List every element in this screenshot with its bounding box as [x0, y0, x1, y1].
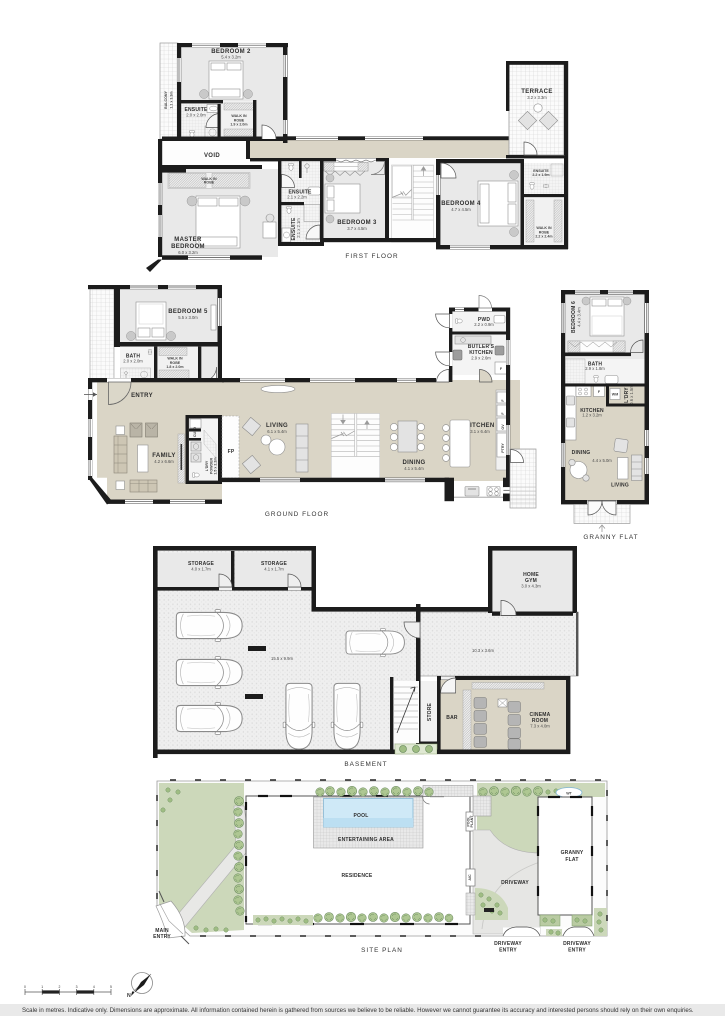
svg-text:1.5 x 2.2m: 1.5 x 2.2m — [214, 457, 218, 474]
svg-text:2: 2 — [58, 985, 60, 989]
svg-text:WALK IN: WALK IN — [231, 114, 247, 118]
svg-text:4.0 x 1.7m: 4.0 x 1.7m — [191, 567, 211, 572]
svg-text:DRIVEWAY: DRIVEWAY — [563, 941, 591, 947]
svg-text:6.0 x 3.2m: 6.0 x 3.2m — [178, 250, 198, 255]
svg-text:FIRST FLOOR: FIRST FLOOR — [345, 253, 398, 260]
svg-text:3.1 x 6.4m: 3.1 x 6.4m — [470, 429, 490, 434]
svg-text:DRIVEWAY: DRIVEWAY — [501, 880, 529, 886]
svg-text:0: 0 — [24, 985, 26, 989]
svg-text:OV: OV — [501, 424, 505, 430]
svg-text:BAR: BAR — [446, 715, 458, 721]
svg-text:5: 5 — [110, 985, 112, 989]
svg-text:7.3 x 4.0m: 7.3 x 4.0m — [530, 724, 550, 729]
svg-text:ENTRY: ENTRY — [131, 393, 153, 399]
svg-text:0.6 x 1.5m: 0.6 x 1.5m — [629, 385, 634, 405]
svg-text:VOID: VOID — [204, 153, 220, 159]
svg-text:4.7 x 4.5m: 4.7 x 4.5m — [451, 207, 471, 212]
svg-text:6.1 x 5.4m: 6.1 x 5.4m — [267, 429, 287, 434]
svg-text:1: 1 — [41, 985, 43, 989]
svg-text:CUPD: CUPD — [193, 427, 197, 438]
svg-text:WM: WM — [612, 393, 618, 397]
svg-text:4.4 x 5.0m: 4.4 x 5.0m — [592, 458, 612, 463]
svg-text:10.3 x 3.6m: 10.3 x 3.6m — [472, 648, 494, 653]
svg-text:1.9 x 2.0m: 1.9 x 2.0m — [230, 123, 247, 127]
svg-text:ENTERTAINING AREA: ENTERTAINING AREA — [338, 837, 394, 843]
svg-text:WT: WT — [566, 792, 572, 796]
svg-text:2.1 x 2.2m: 2.1 x 2.2m — [287, 195, 307, 200]
svg-text:RESIDENCE: RESIDENCE — [342, 873, 373, 879]
svg-text:A/C: A/C — [468, 874, 472, 881]
svg-text:BALCONY: BALCONY — [164, 91, 168, 109]
svg-text:2.2 x 1.9m: 2.2 x 1.9m — [532, 173, 549, 177]
svg-text:FP: FP — [228, 449, 235, 455]
svg-text:Scale in metres. Indicative on: Scale in metres. Indicative only. Dimens… — [22, 1007, 694, 1014]
svg-text:2.1 x 2.1m: 2.1 x 2.1m — [296, 218, 301, 238]
svg-text:3: 3 — [76, 985, 78, 989]
svg-text:PLANT: PLANT — [470, 815, 474, 828]
svg-text:3.0 x 4.3m: 3.0 x 4.3m — [521, 584, 541, 589]
svg-text:1.8 x 2.0m: 1.8 x 2.0m — [166, 365, 183, 369]
svg-text:GRANNY: GRANNY — [561, 850, 584, 856]
svg-text:1.1 x 3.3m: 1.1 x 3.3m — [170, 91, 174, 108]
svg-text:SITE PLAN: SITE PLAN — [361, 947, 403, 954]
svg-text:WALK IN: WALK IN — [167, 357, 183, 361]
svg-text:POOL: POOL — [354, 813, 369, 819]
svg-text:ENTRY: ENTRY — [153, 934, 171, 940]
svg-text:2.2 x 0.9m: 2.2 x 0.9m — [474, 322, 494, 327]
svg-text:2.9 x 2.6m: 2.9 x 2.6m — [471, 356, 491, 361]
svg-text:N: N — [127, 993, 131, 999]
svg-text:ENTRY: ENTRY — [499, 948, 517, 954]
svg-text:2.2 x 2.4m: 2.2 x 2.4m — [535, 235, 552, 239]
svg-text:2.0 x 2.0m: 2.0 x 2.0m — [123, 359, 143, 364]
svg-text:3.2 x 3.3m: 3.2 x 3.3m — [527, 95, 547, 100]
svg-text:4.1 x 5.4m: 4.1 x 5.4m — [404, 466, 424, 471]
svg-text:DINING: DINING — [572, 450, 591, 456]
svg-text:PTRY: PTRY — [501, 443, 505, 453]
svg-text:GROUND FLOOR: GROUND FLOOR — [265, 511, 329, 518]
svg-text:5.4 x 3.2m: 5.4 x 3.2m — [221, 55, 241, 60]
svg-text:4.2 x 6.6m: 4.2 x 6.6m — [154, 459, 174, 464]
svg-text:L'DRY: L'DRY — [205, 460, 209, 471]
svg-text:2.9 x 1.8m: 2.9 x 1.8m — [585, 366, 605, 371]
svg-text:15.5 x 9.9m: 15.5 x 9.9m — [271, 656, 293, 661]
svg-text:FLAT: FLAT — [565, 857, 578, 863]
svg-text:4: 4 — [93, 985, 95, 989]
svg-text:GRANNY FLAT: GRANNY FLAT — [583, 534, 638, 541]
svg-text:1.2 x 3.2m: 1.2 x 3.2m — [582, 413, 602, 418]
svg-text:ENTRY: ENTRY — [568, 948, 586, 954]
svg-text:4.4 x 3.4m: 4.4 x 3.4m — [577, 307, 582, 327]
svg-text:ROBE: ROBE — [204, 181, 215, 185]
svg-text:DRIVEWAY: DRIVEWAY — [494, 941, 522, 947]
svg-text:LIVING: LIVING — [611, 483, 629, 489]
svg-text:4.1 x 1.7m: 4.1 x 1.7m — [264, 567, 284, 572]
svg-text:BASEMENT: BASEMENT — [344, 761, 387, 768]
svg-text:2.0 x 2.0m: 2.0 x 2.0m — [186, 113, 206, 118]
svg-text:WALK IN: WALK IN — [536, 226, 552, 230]
svg-text:MASTER: MASTER — [174, 237, 202, 243]
svg-text:3.7 x 4.5m: 3.7 x 4.5m — [347, 226, 367, 231]
svg-text:5.5 x 3.0m: 5.5 x 3.0m — [178, 315, 198, 320]
svg-text:STORE: STORE — [427, 702, 433, 721]
